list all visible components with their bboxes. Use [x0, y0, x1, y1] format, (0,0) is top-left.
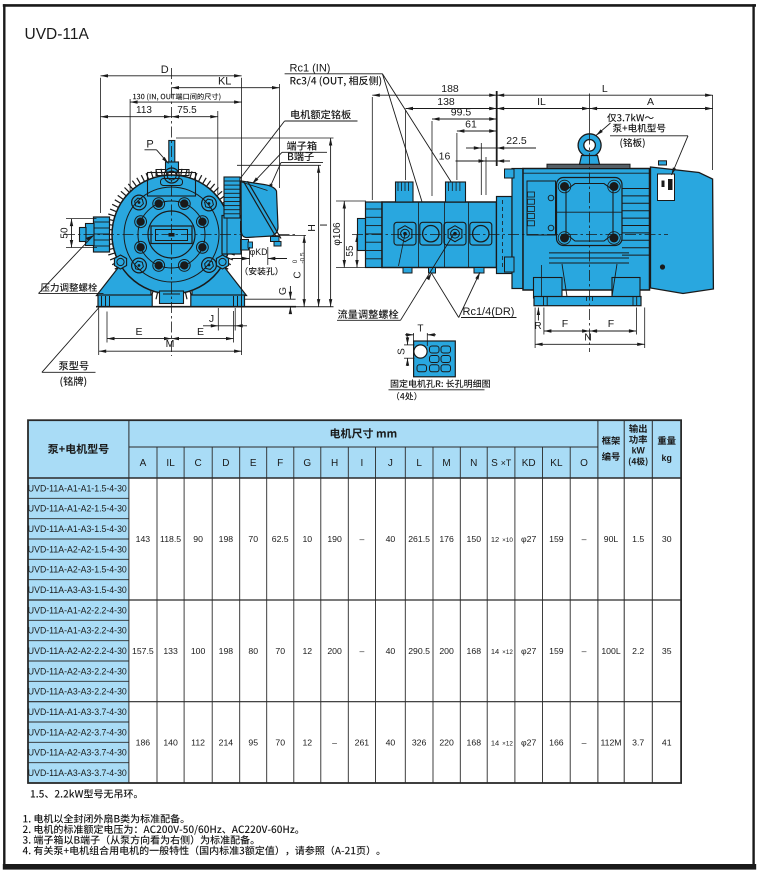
svg-text:Rc1/4(DR): Rc1/4(DR) — [463, 306, 515, 318]
svg-text:I: I — [318, 224, 330, 227]
svg-text:φ27: φ27 — [521, 737, 536, 747]
svg-text:186: 186 — [136, 737, 151, 747]
svg-text:UVD-11A-A2-A2-1.5-4-30: UVD-11A-A2-A2-1.5-4-30 — [28, 544, 127, 554]
svg-text:112M: 112M — [600, 737, 621, 747]
svg-text:10: 10 — [302, 534, 312, 544]
svg-text:UVD-11A-A1-A2-2.2-4-30: UVD-11A-A1-A2-2.2-4-30 — [28, 605, 127, 615]
svg-text:113: 113 — [136, 105, 152, 116]
svg-text:166: 166 — [549, 737, 564, 747]
svg-text:14: 14 — [491, 647, 499, 656]
svg-text:2.2: 2.2 — [632, 646, 644, 656]
svg-text:100L: 100L — [601, 646, 620, 656]
svg-text:198: 198 — [219, 646, 234, 656]
svg-text:UVD-11A-A1-A3-2.2-4-30: UVD-11A-A1-A3-2.2-4-30 — [28, 626, 127, 636]
svg-text:UVD-11A-A2-A3-1.5-4-30: UVD-11A-A2-A3-1.5-4-30 — [28, 565, 127, 575]
svg-text:–: – — [359, 534, 364, 544]
svg-text:T: T — [417, 324, 423, 335]
svg-text:R: R — [534, 321, 541, 332]
svg-text:326: 326 — [412, 737, 427, 747]
svg-text:90: 90 — [193, 534, 203, 544]
svg-text:90L: 90L — [604, 534, 619, 544]
svg-text:G: G — [277, 287, 289, 295]
svg-text:168: 168 — [467, 737, 482, 747]
svg-text:112: 112 — [191, 737, 205, 747]
svg-text:1.5: 1.5 — [632, 534, 644, 544]
svg-text:kW: kW — [632, 446, 646, 456]
svg-text:UVD-11A-A1-A3-1.5-4-30: UVD-11A-A1-A3-1.5-4-30 — [28, 524, 127, 534]
svg-text:×T: ×T — [501, 458, 512, 468]
svg-text:290.5: 290.5 — [408, 646, 430, 656]
svg-text:35: 35 — [662, 646, 672, 656]
svg-text:UVD-11A-A1-A1-1.5-4-30: UVD-11A-A1-A1-1.5-4-30 — [28, 483, 127, 493]
svg-text:UVD-11A-A2-A2-2.2-4-30: UVD-11A-A2-A2-2.2-4-30 — [28, 646, 127, 656]
svg-text:J: J — [209, 313, 214, 325]
svg-text:80: 80 — [248, 646, 258, 656]
svg-text:KL: KL — [550, 458, 563, 469]
svg-text:143: 143 — [136, 534, 151, 544]
svg-text:H: H — [306, 224, 318, 232]
svg-text:190: 190 — [327, 534, 342, 544]
svg-text:40: 40 — [386, 534, 396, 544]
svg-text:φ106: φ106 — [332, 222, 343, 246]
svg-text:φKD: φKD — [250, 247, 268, 257]
svg-text:UVD-11A: UVD-11A — [25, 26, 90, 43]
svg-text:F: F — [277, 458, 283, 469]
svg-text:S: S — [396, 348, 407, 355]
svg-text:C: C — [292, 271, 303, 278]
svg-text:IL: IL — [537, 96, 546, 108]
svg-text:D: D — [161, 64, 169, 76]
svg-text:-0.5: -0.5 — [299, 252, 306, 263]
svg-text:UVD-11A-A3-A3-1.5-4-30: UVD-11A-A3-A3-1.5-4-30 — [28, 585, 127, 595]
svg-text:40: 40 — [386, 646, 396, 656]
svg-text:261.5: 261.5 — [408, 534, 430, 544]
svg-text:F: F — [608, 318, 614, 330]
svg-text:N: N — [584, 332, 592, 344]
svg-text:62.5: 62.5 — [272, 534, 289, 544]
svg-text:41: 41 — [662, 737, 672, 747]
svg-text:198: 198 — [219, 534, 234, 544]
svg-text:L: L — [416, 458, 422, 469]
svg-text:E: E — [135, 326, 142, 338]
svg-text:70: 70 — [248, 534, 258, 544]
svg-text:176: 176 — [439, 534, 454, 544]
svg-text:70: 70 — [275, 737, 285, 747]
svg-text:12: 12 — [302, 646, 312, 656]
svg-text:φ27: φ27 — [521, 646, 536, 656]
svg-text:150: 150 — [467, 534, 482, 544]
svg-text:KL: KL — [218, 75, 231, 87]
svg-text:200: 200 — [439, 646, 454, 656]
svg-text:–: – — [359, 646, 364, 656]
svg-text:UVD-11A-A2-A3-3.7-4-30: UVD-11A-A2-A3-3.7-4-30 — [28, 748, 127, 758]
svg-text:12: 12 — [491, 535, 499, 544]
svg-text:M: M — [442, 458, 450, 469]
svg-text:16: 16 — [439, 151, 451, 163]
svg-text:75.5: 75.5 — [177, 105, 197, 116]
svg-text:IL: IL — [166, 458, 175, 469]
svg-text:40: 40 — [386, 737, 396, 747]
svg-text:214: 214 — [219, 737, 234, 747]
svg-text:L: L — [602, 83, 608, 95]
svg-text:0: 0 — [292, 259, 299, 263]
svg-text:100: 100 — [191, 646, 206, 656]
svg-text:E: E — [250, 458, 257, 469]
svg-text:×10: ×10 — [502, 537, 513, 544]
svg-text:95: 95 — [248, 737, 258, 747]
svg-text:H: H — [331, 458, 338, 469]
svg-text:UVD-11A-A1-A2-1.5-4-30: UVD-11A-A1-A2-1.5-4-30 — [28, 504, 127, 514]
svg-text:C: C — [194, 458, 201, 469]
svg-text:E: E — [197, 326, 204, 338]
svg-text:Rc1 (IN): Rc1 (IN) — [290, 62, 331, 74]
svg-text:159: 159 — [549, 646, 564, 656]
svg-text:159: 159 — [549, 534, 564, 544]
svg-text:UVD-11A-A2-A2-3.7-4-30: UVD-11A-A2-A2-3.7-4-30 — [28, 727, 127, 737]
svg-text:J: J — [388, 458, 393, 469]
svg-text:A: A — [647, 96, 654, 108]
svg-text:55: 55 — [345, 245, 356, 257]
svg-text:UVD-11A-A3-A3-3.7-4-30: UVD-11A-A3-A3-3.7-4-30 — [28, 768, 127, 778]
svg-text:–: – — [332, 737, 337, 747]
svg-text:200: 200 — [327, 646, 342, 656]
svg-text:N: N — [470, 458, 477, 469]
svg-text:UVD-11A-A2-A3-2.2-4-30: UVD-11A-A2-A3-2.2-4-30 — [28, 666, 127, 676]
svg-text:99.5: 99.5 — [451, 107, 472, 119]
svg-text:50: 50 — [60, 227, 71, 239]
svg-text:O: O — [580, 458, 588, 469]
svg-text:–: – — [582, 534, 587, 544]
svg-text:12: 12 — [302, 737, 312, 747]
svg-text:30: 30 — [662, 534, 672, 544]
svg-text:M: M — [166, 338, 175, 350]
svg-text:A: A — [140, 458, 147, 469]
svg-text:70: 70 — [275, 646, 285, 656]
svg-text:157.5: 157.5 — [132, 646, 154, 656]
svg-text:UVD-11A-A1-A3-3.7-4-30: UVD-11A-A1-A3-3.7-4-30 — [28, 707, 127, 717]
svg-text:KD: KD — [522, 458, 536, 469]
svg-text:140: 140 — [163, 737, 178, 747]
svg-text:G: G — [303, 458, 311, 469]
svg-text:–: – — [582, 646, 587, 656]
svg-text:3.7: 3.7 — [632, 737, 644, 747]
svg-text:133: 133 — [163, 646, 178, 656]
svg-text:I: I — [361, 458, 364, 469]
svg-text:168: 168 — [467, 646, 482, 656]
svg-text:F: F — [562, 318, 568, 330]
svg-text:–: – — [582, 737, 587, 747]
svg-text:kg: kg — [662, 453, 672, 463]
svg-text:14: 14 — [491, 738, 499, 747]
svg-text:×12: ×12 — [502, 740, 513, 747]
svg-text:D: D — [222, 458, 229, 469]
svg-text:261: 261 — [355, 737, 370, 747]
svg-text:φ27: φ27 — [521, 534, 536, 544]
svg-text:P: P — [146, 139, 153, 151]
svg-text:22.5: 22.5 — [506, 135, 527, 147]
svg-text:×12: ×12 — [502, 649, 513, 656]
svg-text:220: 220 — [439, 737, 454, 747]
svg-text:188: 188 — [441, 83, 459, 95]
svg-text:UVD-11A-A3-A3-2.2-4-30: UVD-11A-A3-A3-2.2-4-30 — [28, 687, 127, 697]
svg-text:61: 61 — [465, 119, 477, 131]
svg-text:118.5: 118.5 — [160, 534, 181, 544]
svg-text:S: S — [491, 458, 498, 469]
